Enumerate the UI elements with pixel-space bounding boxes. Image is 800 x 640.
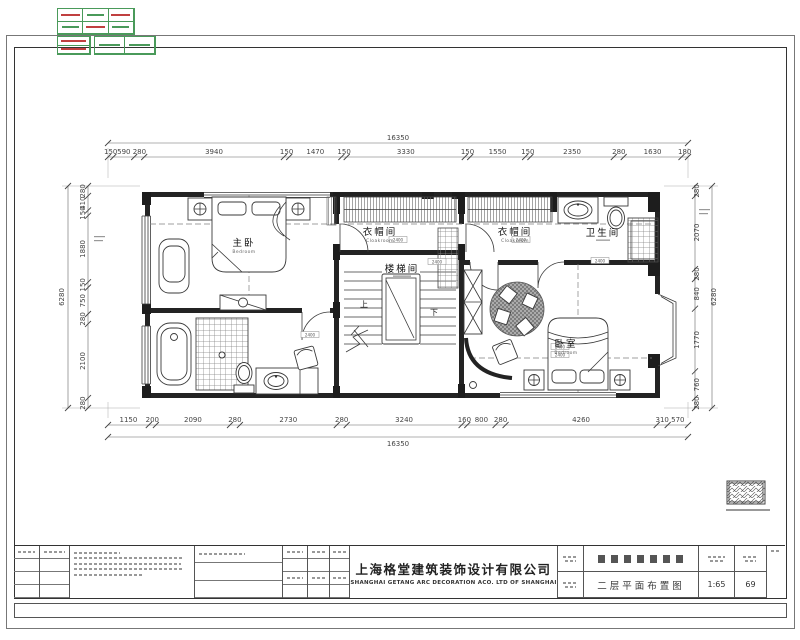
tb-signature-area: [195, 546, 283, 598]
dim-label: 280: [693, 396, 701, 409]
shower-area-2: [628, 218, 658, 262]
toilet-2: [604, 197, 628, 229]
dim-label: 590: [117, 148, 130, 156]
tb-company: 上海格堂建筑装饰设计有限公司 SHANGHAI GETANG ARC DECOR…: [350, 546, 558, 598]
dim-label: 310: [656, 416, 669, 424]
tb-small-col-1: [283, 546, 308, 598]
dim-label: 160: [458, 416, 471, 424]
tb-field-labels: [558, 546, 584, 598]
master-dresser: [220, 295, 266, 310]
label-stair-up: 上: [360, 300, 368, 309]
company-name-cn: 上海格堂建筑装饰设计有限公司: [355, 559, 551, 578]
label-bedroom2: 卧室: [554, 338, 577, 350]
label-cloak2-sub: Cloakroom: [501, 238, 529, 244]
dim-label: 2350: [563, 148, 581, 156]
dim-label: 1470: [306, 148, 324, 156]
dim-label: 2070: [693, 224, 701, 242]
dim-label: 3240: [395, 416, 413, 424]
floor-plan: 16350 1505902803940150147015033301501550…: [0, 0, 800, 640]
label-master: 主卧: [232, 237, 255, 249]
label-cloak1-sub: Cloakroom: [366, 238, 394, 244]
dim-chain-right: 28020702808401770760280 6280: [692, 183, 718, 411]
drawing-title: 二层平面布置图: [597, 578, 685, 592]
label-master-sub: Bedroom: [232, 249, 255, 255]
dim-label: 280: [79, 312, 87, 325]
tb-scale: 1:65: [699, 546, 735, 598]
drawing-sheet: 16350 1505902803940150147015033301501550…: [0, 0, 800, 640]
door-size-tag: 2400: [432, 260, 443, 265]
tb-small-col-3: [330, 546, 350, 598]
master-wardrobe: [327, 197, 336, 225]
cloak1-closet: [344, 197, 456, 222]
bedroom2-chair: [492, 339, 518, 365]
dim-total-right: 6280: [710, 288, 718, 306]
company-name-en: SHANGHAI GETANG ARC DECORATION ACO. LTD …: [350, 580, 556, 586]
door-size-tag: 2400: [393, 238, 404, 243]
door-size-tag: 2400: [305, 333, 316, 338]
dim-label: 2090: [184, 416, 202, 424]
bay-window: [658, 294, 676, 366]
dim-label: 570: [671, 416, 684, 424]
door-size-tag: 2400: [595, 259, 606, 264]
label-stair-sub: [393, 276, 411, 277]
dim-label: 2730: [279, 416, 297, 424]
dim-label: 1550: [489, 148, 507, 156]
dim-label: 280: [693, 184, 701, 197]
dim-label: 180: [678, 148, 691, 156]
vanity-1: [256, 368, 318, 394]
dim-label: 200: [146, 416, 159, 424]
dim-label: 150: [521, 148, 534, 156]
dim-label: 1770: [693, 331, 701, 349]
dim-label: 1880: [79, 240, 87, 258]
dim-label: 280: [494, 416, 507, 424]
cloak2-closet: [468, 197, 552, 222]
dim-label: 280: [335, 416, 348, 424]
dim-label: 280: [133, 148, 146, 156]
tb-notes: [70, 546, 195, 598]
dim-label: 800: [475, 416, 488, 424]
legend-hatch: [726, 481, 770, 511]
dim-chain-top: 16350 1505902803940150147015033301501550…: [104, 134, 691, 160]
dim-label: 3940: [205, 148, 223, 156]
side-annotation-right: [699, 209, 710, 214]
label-bath: 卫生间: [586, 227, 621, 239]
dim-label: 4260: [572, 416, 590, 424]
dim-label: 280: [79, 396, 87, 409]
dim-total-left: 6280: [58, 288, 66, 306]
chair-1: [294, 346, 318, 370]
dim-label: 840: [693, 287, 701, 300]
label-bedroom2-sub: Bedroom: [554, 350, 577, 356]
label-bath-sub: [596, 240, 610, 241]
label-cloak2: 衣帽间: [498, 226, 533, 238]
project-name-handwritten: [584, 546, 698, 572]
dim-label: 3330: [397, 148, 415, 156]
vanity-2: [558, 197, 598, 223]
dim-label: 150: [280, 148, 293, 156]
dim-label: 280: [228, 416, 241, 424]
dim-label: 760: [693, 378, 701, 391]
dim-label: 150: [104, 148, 117, 156]
tb-last-col: [767, 546, 785, 598]
tb-revision-col-2: [40, 546, 70, 598]
title-block: 上海格堂建筑装饰设计有限公司 SHANGHAI GETANG ARC DECOR…: [14, 545, 785, 598]
dim-total-top: 16350: [387, 134, 409, 142]
dim-label: 280: [79, 184, 87, 197]
scale-value: 1:65: [708, 580, 726, 589]
sheet-number: 69: [745, 580, 755, 589]
tb-revision-col-1: [14, 546, 40, 598]
dim-label: 280: [693, 267, 701, 280]
dim-label: 150: [337, 148, 350, 156]
label-cloak1: 衣帽间: [363, 226, 398, 238]
dim-label: 750: [79, 294, 87, 307]
dim-label: 280: [612, 148, 625, 156]
dim-label: 1630: [644, 148, 662, 156]
tb-small-col-2: [308, 546, 330, 598]
hall-cabinet: [464, 270, 482, 334]
label-stair: 楼梯间: [385, 263, 420, 275]
dim-label: 150: [79, 206, 87, 219]
dim-label: 150: [79, 278, 87, 291]
master-chaise: [159, 239, 189, 293]
cloak1-shoe-cabinet: [438, 228, 458, 288]
dim-label: 150: [461, 148, 474, 156]
tb-sheet-no: 69: [735, 546, 767, 598]
dim-chain-bottom: 1150200209028027302803240160800280426031…: [105, 416, 691, 448]
bathtub: [157, 323, 191, 385]
dim-label: 2100: [79, 352, 87, 370]
tb-field-values: 二层平面布置图: [584, 546, 699, 598]
label-stair-down: 下: [430, 308, 438, 317]
toilet-1: [234, 363, 254, 394]
bedroom2-rug: [490, 282, 544, 336]
dim-label: 1150: [119, 416, 137, 424]
dim-total-bottom: 16350: [387, 440, 409, 448]
dim-chain-left: 6280 28041015018801507502802100280: [58, 183, 91, 411]
side-annotation-left: [94, 236, 105, 241]
master-bed: [188, 197, 310, 272]
